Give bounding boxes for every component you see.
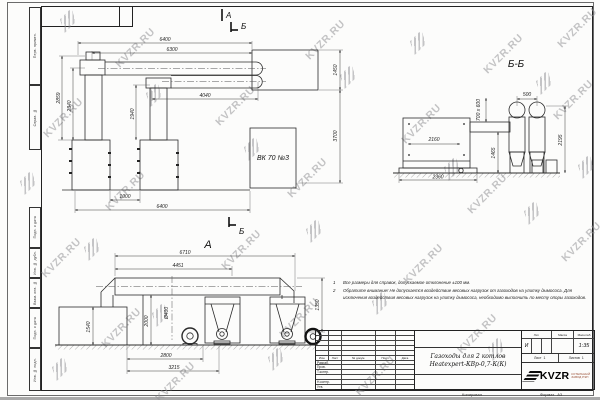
lit-cell: Лит. И (522, 331, 552, 353)
dim-va-2800: 2800 (159, 353, 171, 359)
sheets-total-cell: Листов1 (559, 354, 595, 362)
title-block-revision-table: Изм. Лист № докум. Подп. Дата Разраб. Пр… (316, 331, 415, 389)
dim-plan-1000: 1000 (119, 194, 130, 200)
title-block-right-section: Лит. И Масса Масштаб 1:35 Лист1 Листов1 (522, 331, 594, 389)
dim-plan-1450: 1450 (333, 64, 339, 75)
dim-va-6710: 6710 (179, 250, 190, 256)
notes-block: 1 Все размеры для справок, допускаемое о… (333, 280, 589, 302)
section-marker-b-bottom-label: Б (239, 227, 244, 236)
lit-value: И (522, 339, 532, 353)
section-marker-b-top-label: Б (241, 22, 246, 31)
section-marker-a-label: А (225, 11, 231, 20)
role-prov: Пров. (316, 365, 342, 369)
view-a-title: А (203, 239, 211, 251)
dim-plan-2340: 2340 (67, 100, 73, 112)
dim-plan-6400-bottom: 6400 (156, 204, 167, 210)
scale-value: 1:35 (574, 339, 594, 353)
plan-section-markers (222, 9, 238, 227)
dim-bb-2360: 2360 (431, 175, 443, 181)
brand-name: KVZR (540, 370, 569, 382)
role-tkontr: Т.контр. (316, 370, 342, 374)
scale-cell: Масштаб 1:35 (574, 331, 594, 353)
footer-format: ФорматА3 (540, 392, 562, 397)
note-2-number: 2 (333, 288, 339, 302)
dim-va-dia400: Ø400 (164, 307, 170, 320)
role-razrab: Разраб. (316, 361, 342, 365)
brand-subtitle-2: ЗАВОД РЭП (571, 376, 590, 379)
note-2-text: Обратите внимание! Не допускается воздей… (343, 288, 589, 302)
dim-plan-3700: 3700 (333, 130, 339, 141)
note-2: 2 Обратите внимание! Не допускается возд… (333, 288, 589, 302)
dim-bb-2160: 2160 (427, 137, 439, 143)
dim-va-2000: 2000 (144, 315, 150, 327)
dim-bb-500: 500 (523, 92, 532, 98)
dim-plan-2859: 2859 (56, 92, 62, 104)
view-a-dimension-lines (93, 253, 325, 374)
dim-va-4451: 4451 (172, 263, 183, 269)
doc-title-line1: Газоходы для 2 котлов (430, 353, 505, 361)
kvzr-logo-icon (522, 371, 542, 382)
boiler-anchor-ticks (69, 148, 179, 178)
footer-kopiroval: Копировал (462, 392, 482, 397)
view-a-linework (55, 276, 321, 350)
title-block-document-title: Газоходы для 2 котлов Heatexpert-КВр-0,7… (415, 331, 522, 389)
mass-cell: Масса (552, 331, 574, 353)
role-utv: Утв. (316, 385, 342, 389)
dim-va-1540: 1540 (86, 321, 92, 332)
dim-plan-4040: 4040 (199, 93, 210, 99)
dim-plan-1940: 1940 (130, 108, 136, 119)
dim-bb-2195: 2195 (558, 134, 564, 146)
note-1: 1 Все размеры для справок, допускаемое о… (333, 280, 589, 287)
engineering-drawing-sheet: KVZR.RU KVZR.RU KVZR.RU KVZR.RU KVZR.RU … (0, 0, 600, 400)
note-1-number: 1 (333, 280, 339, 287)
sheet-number-cell: Лист1 (522, 354, 559, 362)
plan-dimension-lines (58, 41, 343, 213)
doc-title-line2: Heatexpert-КВр-0,7-К(К) (430, 361, 507, 369)
equipment-label-vk70: ВК 70 №3 (257, 155, 289, 162)
dim-bb-700x600: 700 x 600 (476, 99, 482, 121)
role-nkontr: Н.контр. (316, 380, 342, 384)
title-block: Изм. Лист № докум. Подп. Дата Разраб. Пр… (315, 330, 595, 390)
dim-bb-1465: 1465 (491, 147, 497, 158)
plan-view-linework (62, 50, 318, 190)
dim-plan-6400-top: 6400 (159, 37, 170, 43)
section-bb-title: Б-Б (508, 59, 525, 70)
dim-va-3215: 3215 (168, 365, 179, 371)
dim-va-1350: 1350 (315, 299, 321, 310)
note-1-text: Все размеры для справок, допускаемое отк… (343, 280, 470, 287)
dim-plan-6300: 6300 (166, 47, 177, 53)
company-logo-cell: KVZR КОТЕЛЬНЫЙ ЗАВОД РЭП (522, 363, 594, 389)
